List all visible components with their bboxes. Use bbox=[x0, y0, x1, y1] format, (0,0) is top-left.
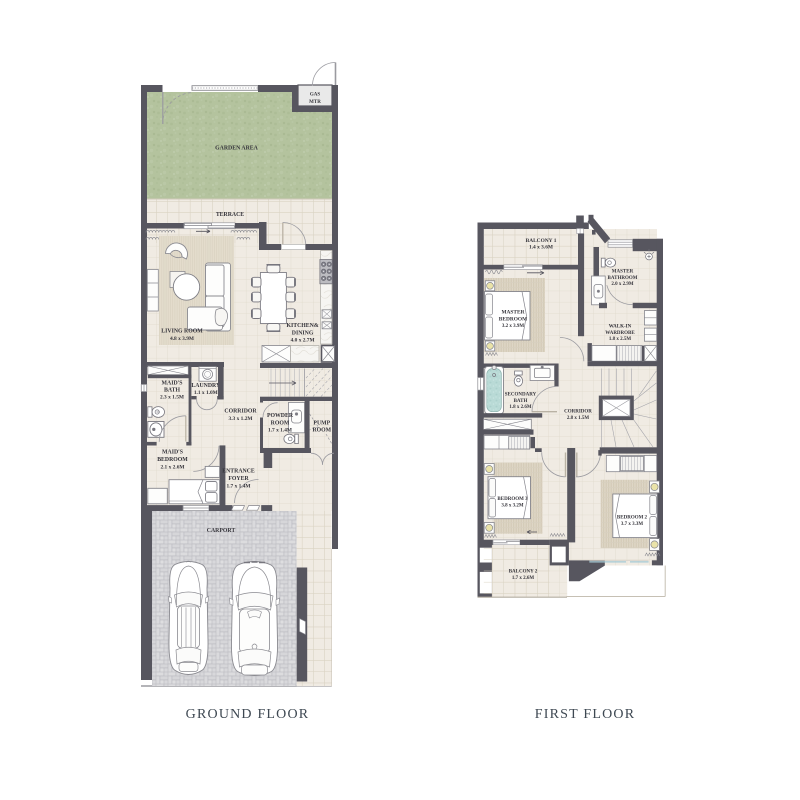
svg-text:ROOM: ROOM bbox=[312, 428, 331, 434]
svg-text:4.8 x 3.9M: 4.8 x 3.9M bbox=[170, 336, 194, 342]
svg-text:3.3 x 1.2M: 3.3 x 1.2M bbox=[229, 416, 253, 422]
svg-text:WARDROBE: WARDROBE bbox=[605, 331, 635, 336]
svg-text:4.0 x 2.7M: 4.0 x 2.7M bbox=[291, 338, 315, 344]
svg-text:BEDROOM: BEDROOM bbox=[157, 457, 188, 463]
svg-text:BALCONY 2: BALCONY 2 bbox=[509, 570, 538, 575]
svg-text:MASTER: MASTER bbox=[501, 310, 524, 316]
svg-text:1.7 x 2.6M: 1.7 x 2.6M bbox=[512, 576, 535, 581]
svg-text:LAUNDRY: LAUNDRY bbox=[191, 383, 221, 389]
svg-text:ENTRANCE: ENTRANCE bbox=[222, 469, 255, 475]
svg-text:TERRACE: TERRACE bbox=[216, 212, 244, 218]
svg-text:ROOM: ROOM bbox=[271, 420, 290, 426]
svg-text:BEDROOM 3: BEDROOM 3 bbox=[497, 497, 528, 502]
svg-text:DINING: DINING bbox=[292, 331, 314, 337]
svg-text:1.4 x 3.6M: 1.4 x 3.6M bbox=[529, 245, 553, 251]
svg-text:3.7 x 3.3M: 3.7 x 3.3M bbox=[621, 522, 644, 527]
svg-text:2.0 x 2.9M: 2.0 x 2.9M bbox=[611, 282, 634, 287]
svg-text:KITCHEN&: KITCHEN& bbox=[286, 323, 318, 329]
svg-text:GARDEN AREA: GARDEN AREA bbox=[215, 146, 258, 152]
svg-text:MAID'S: MAID'S bbox=[162, 450, 183, 456]
svg-text:2.8 x 1.5M: 2.8 x 1.5M bbox=[567, 416, 590, 421]
svg-text:1.7 x 1.4M: 1.7 x 1.4M bbox=[268, 427, 292, 433]
svg-text:1.8 x 2.5M: 1.8 x 2.5M bbox=[609, 337, 632, 342]
svg-text:2.1 x 2.6M: 2.1 x 2.6M bbox=[161, 464, 185, 470]
svg-text:BALCONY 1: BALCONY 1 bbox=[526, 238, 557, 244]
svg-text:MAID'S: MAID'S bbox=[162, 381, 183, 387]
svg-text:GAS: GAS bbox=[310, 93, 321, 98]
svg-text:BEDROOM: BEDROOM bbox=[499, 317, 527, 323]
svg-text:1.8 x 2.6M: 1.8 x 2.6M bbox=[509, 405, 532, 410]
svg-text:GROUND FLOOR: GROUND FLOOR bbox=[186, 707, 310, 722]
svg-text:MTR: MTR bbox=[309, 100, 321, 105]
svg-text:BATH: BATH bbox=[164, 388, 180, 394]
svg-text:SECONDARY: SECONDARY bbox=[505, 393, 537, 398]
svg-text:FOYER: FOYER bbox=[228, 476, 249, 482]
svg-text:PUMP: PUMP bbox=[313, 420, 330, 426]
svg-text:2.3 x 1.5M: 2.3 x 1.5M bbox=[160, 394, 184, 400]
svg-text:BEDROOM 2: BEDROOM 2 bbox=[617, 516, 648, 521]
svg-text:1.1 x 1.0M: 1.1 x 1.0M bbox=[194, 390, 218, 396]
svg-text:MASTER: MASTER bbox=[612, 270, 634, 275]
svg-text:CARPORT: CARPORT bbox=[207, 528, 236, 534]
svg-text:3.2 x 3.9M: 3.2 x 3.9M bbox=[502, 324, 525, 329]
svg-text:BATHROOM: BATHROOM bbox=[608, 276, 638, 281]
svg-text:CORRIDOR: CORRIDOR bbox=[224, 409, 257, 415]
svg-text:3.8 x 3.2M: 3.8 x 3.2M bbox=[501, 504, 524, 509]
svg-text:WALK-IN: WALK-IN bbox=[609, 325, 632, 330]
svg-text:1.7 x 1.4M: 1.7 x 1.4M bbox=[227, 484, 251, 490]
svg-text:POWDER: POWDER bbox=[267, 413, 294, 419]
svg-text:BATH: BATH bbox=[514, 399, 528, 404]
svg-text:FIRST FLOOR: FIRST FLOOR bbox=[535, 707, 635, 722]
svg-text:CORRIDOR: CORRIDOR bbox=[564, 410, 592, 415]
svg-text:LIVING ROOM: LIVING ROOM bbox=[161, 329, 203, 335]
